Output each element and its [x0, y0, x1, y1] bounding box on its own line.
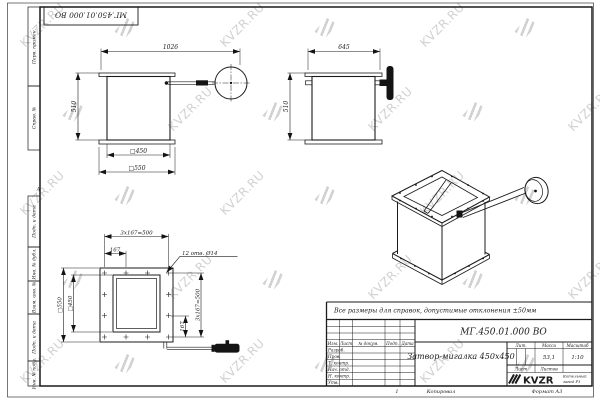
counterweight-edge: [387, 66, 394, 100]
dim-text: 645: [338, 44, 350, 51]
col-header: Лист: [339, 341, 353, 346]
sheets-label: Листов: [539, 367, 558, 372]
format-label: Формат А3: [532, 389, 563, 395]
designation: МГ.450.01.000 ВО: [459, 328, 547, 338]
left-col-label: Инв. № подл.: [32, 357, 38, 390]
view-plan: 3x167=500 167 12 отв. Ø14 □550 □450 167 …: [58, 231, 240, 353]
part-name: Затвор-мигалка 450х450: [407, 352, 514, 361]
drawing-sheet: KVZR.RUKVZR.RUKVZR.RUKVZR.RUKVZR.RUKVZR.…: [0, 0, 600, 400]
zone-marker: А: [36, 187, 41, 193]
left-col-label: Подп. и дата: [32, 205, 38, 239]
scale-value: 1:10: [571, 355, 584, 361]
dim-text: 510: [71, 101, 78, 113]
counterweight-plan: [215, 344, 240, 353]
top-stamp-designation: МГ.450.01.000 ВО: [55, 11, 128, 20]
company-logo-icon: [509, 375, 520, 384]
sig-row: Н. контр.: [327, 374, 350, 379]
left-col-label: Перв. примен.: [32, 28, 38, 65]
view-front: 1026 510 □450 □550: [71, 44, 250, 175]
left-column: Перв. примен. Справ. № Подп. и дата Инв.…: [28, 7, 41, 390]
left-col-label: Подп. и дата: [32, 321, 38, 355]
holes-note: 12 отв. Ø14: [182, 250, 218, 257]
view-side: 645 510: [283, 44, 394, 144]
sig-row: Нач. отд.: [327, 367, 350, 372]
top-stamp: МГ.450.01.000 ВО: [44, 7, 138, 25]
sheet-label: Лист: [514, 367, 528, 372]
sig-row: Пров.: [327, 354, 341, 359]
dim-text: 3x167=500: [195, 288, 201, 321]
axle-pin: [306, 81, 313, 85]
sig-row: Т. контр.: [328, 361, 349, 366]
frame: [8, 3, 594, 397]
col-header: № докум.: [357, 341, 378, 346]
general-note: Все размеры для справок, допустимые откл…: [333, 308, 536, 315]
mass-label: Масса: [541, 343, 556, 348]
col-header: Подп.: [385, 341, 399, 346]
sig-row: Утв.: [328, 380, 339, 385]
lever-handle: [196, 80, 208, 85]
pivot-point: [165, 81, 169, 85]
engineering-drawing: Перв. примен. Справ. № Подп. и дата Инв.…: [0, 0, 600, 400]
lever-arm: [460, 188, 526, 218]
left-col-label: Взам. инв. №: [32, 281, 38, 314]
scale-label: Масштаб: [565, 343, 589, 348]
view-isometric: [392, 171, 551, 285]
col-header: Изм.: [327, 341, 339, 346]
left-col-label: Справ. №: [32, 106, 38, 129]
company-name-line2: завод РЗ: [563, 379, 581, 384]
dim-text: 3x167=500: [120, 231, 153, 237]
dim-text: 510: [283, 101, 290, 113]
lit-label: Лит.: [514, 343, 527, 348]
company-logo-text: KVZR: [523, 376, 554, 387]
dim-text: □550: [58, 297, 64, 313]
col-header: Дата: [400, 341, 414, 346]
mass-value: 53,1: [543, 355, 555, 361]
dim-text: □450: [130, 148, 147, 155]
zone-number: 1: [395, 389, 398, 395]
dim-text: 167: [110, 247, 121, 253]
left-col-label: Инв. № дубл.: [31, 248, 38, 281]
dim-text: □450: [68, 295, 74, 311]
dim-text: 167: [180, 321, 186, 332]
company-name-line1: Котельный: [562, 374, 587, 379]
copied-label: Копировал: [426, 389, 456, 395]
dim-text: □550: [128, 165, 145, 172]
sig-row: Разраб.: [327, 348, 345, 353]
title-block: Все размеры для справок, допустимые откл…: [327, 302, 593, 395]
bolt-hole-crosses: [102, 271, 171, 340]
dim-text: 1026: [163, 44, 178, 51]
